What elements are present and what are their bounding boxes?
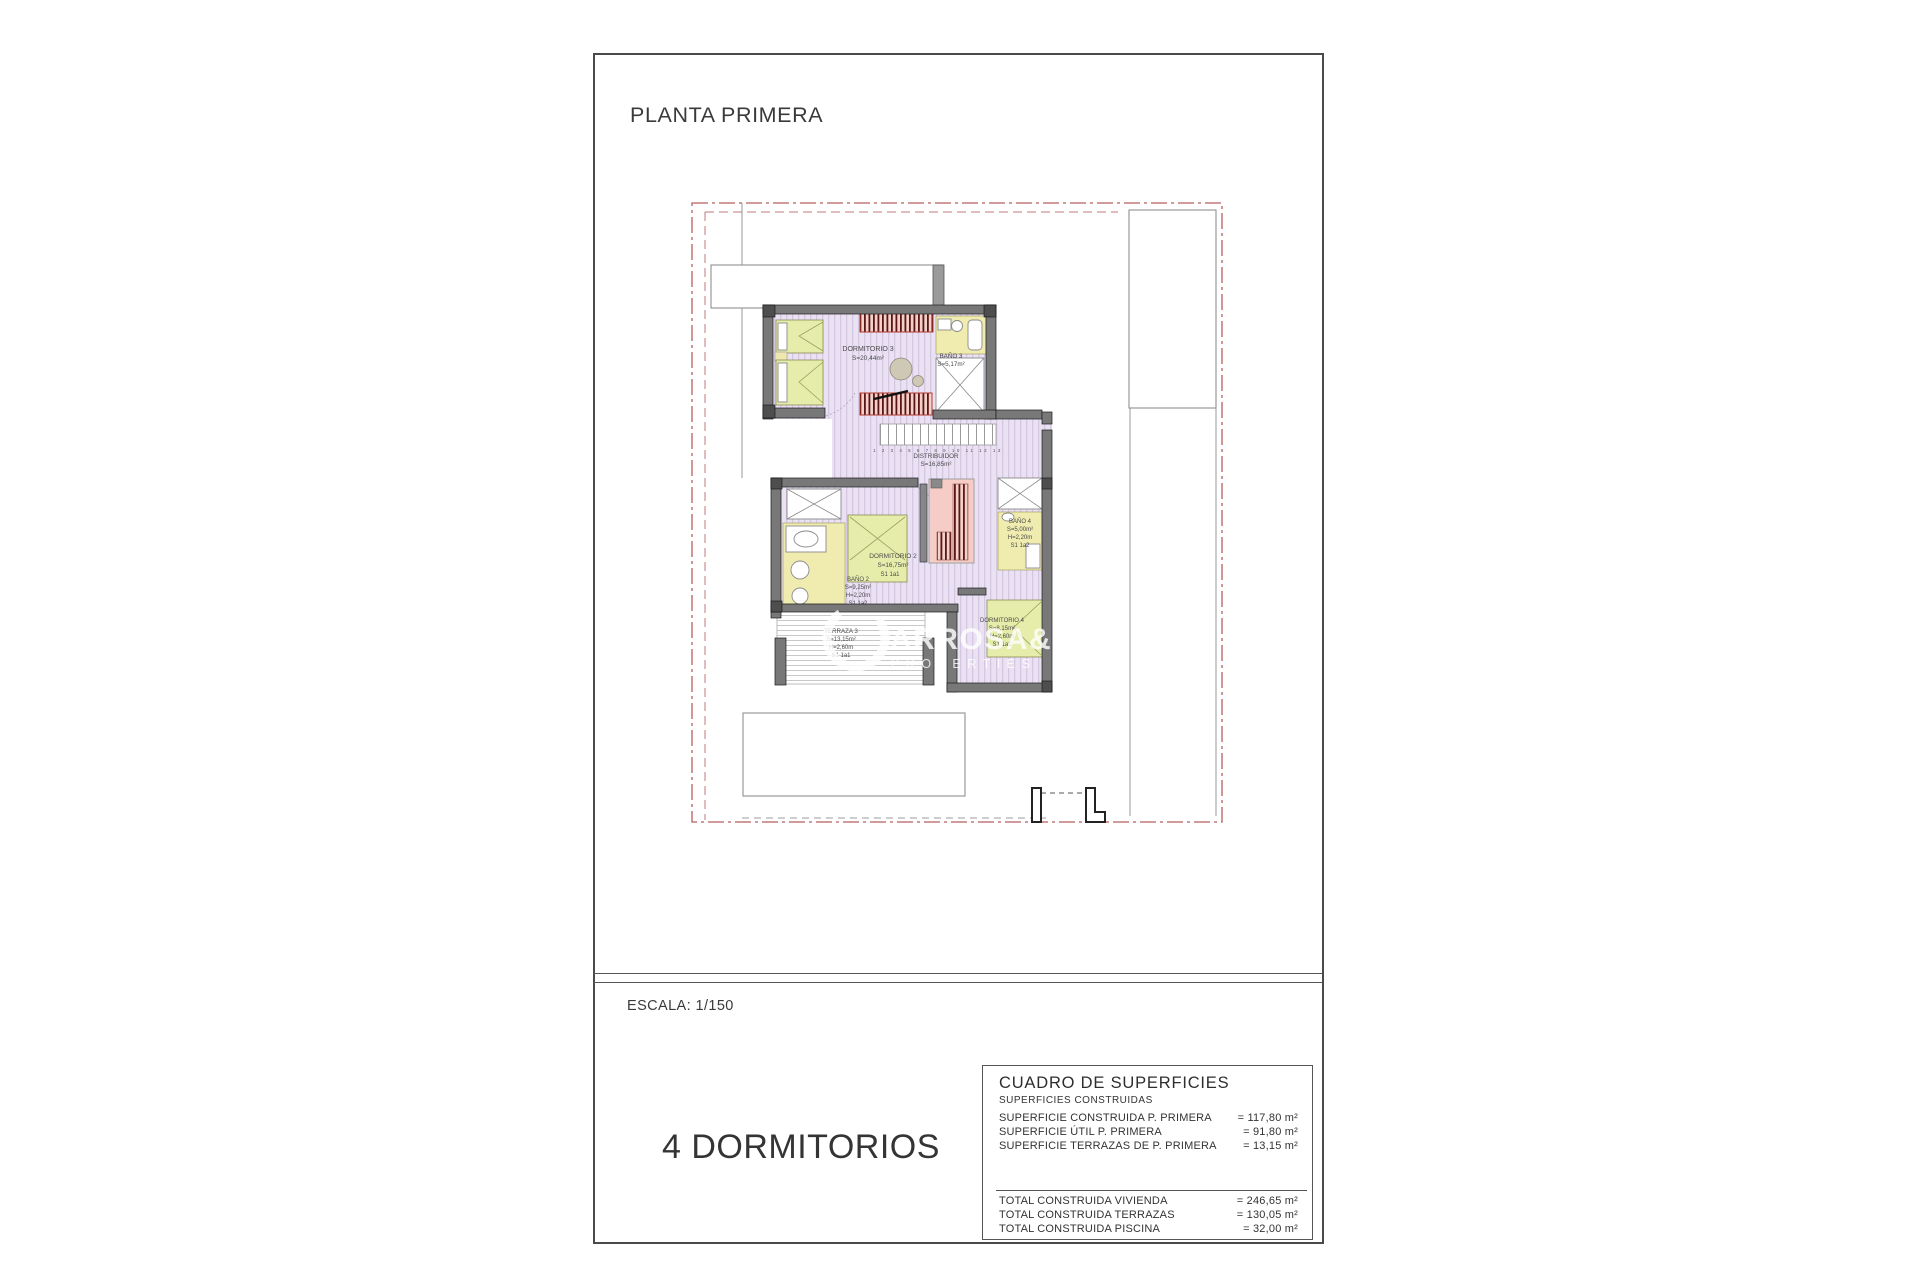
drawing-page: PLANTA PRIMERA ESCALA: 1/150 4 DORMITORI… bbox=[0, 0, 1920, 1280]
room-label: DORMITORIO 2 bbox=[869, 553, 917, 560]
room-label: DISTRIBUIDOR bbox=[913, 453, 959, 460]
floor-plan: DORMITORIO 3 S=20,44m² BAÑO 3 S=5,17m² 1… bbox=[0, 0, 1920, 1280]
room-label: BAÑO 4 bbox=[1009, 518, 1032, 525]
room-area: S=9,25m² bbox=[845, 585, 871, 591]
watermark-brand: ARROSA&B bbox=[890, 623, 1075, 656]
gate-posts bbox=[1032, 788, 1105, 822]
room-area: S=5,17m² bbox=[937, 361, 964, 368]
room-area: S=16,75m² bbox=[878, 562, 909, 569]
room-note: S1 1a1 bbox=[880, 572, 900, 578]
room-label: BAÑO 3 bbox=[939, 351, 963, 360]
room-note: S1 1a2 bbox=[1010, 543, 1030, 549]
room-area: S=20,44m² bbox=[852, 355, 885, 362]
room-area: S=16,85m² bbox=[921, 461, 952, 468]
room-label: DORMITORIO 3 bbox=[842, 346, 893, 353]
room-height: H=2,20m bbox=[1008, 535, 1033, 541]
room-bano-4: BAÑO 4 S=5,00m² H=2,20m S1 1a2 bbox=[998, 478, 1042, 570]
room-height: H=2,20m bbox=[846, 593, 871, 599]
watermark-tagline: PROPERTIES bbox=[891, 657, 1036, 671]
room-label: BAÑO 2 bbox=[847, 576, 870, 583]
room-bano-3: BAÑO 3 S=5,17m² bbox=[936, 316, 986, 412]
room-area: S=5,00m² bbox=[1007, 527, 1033, 533]
